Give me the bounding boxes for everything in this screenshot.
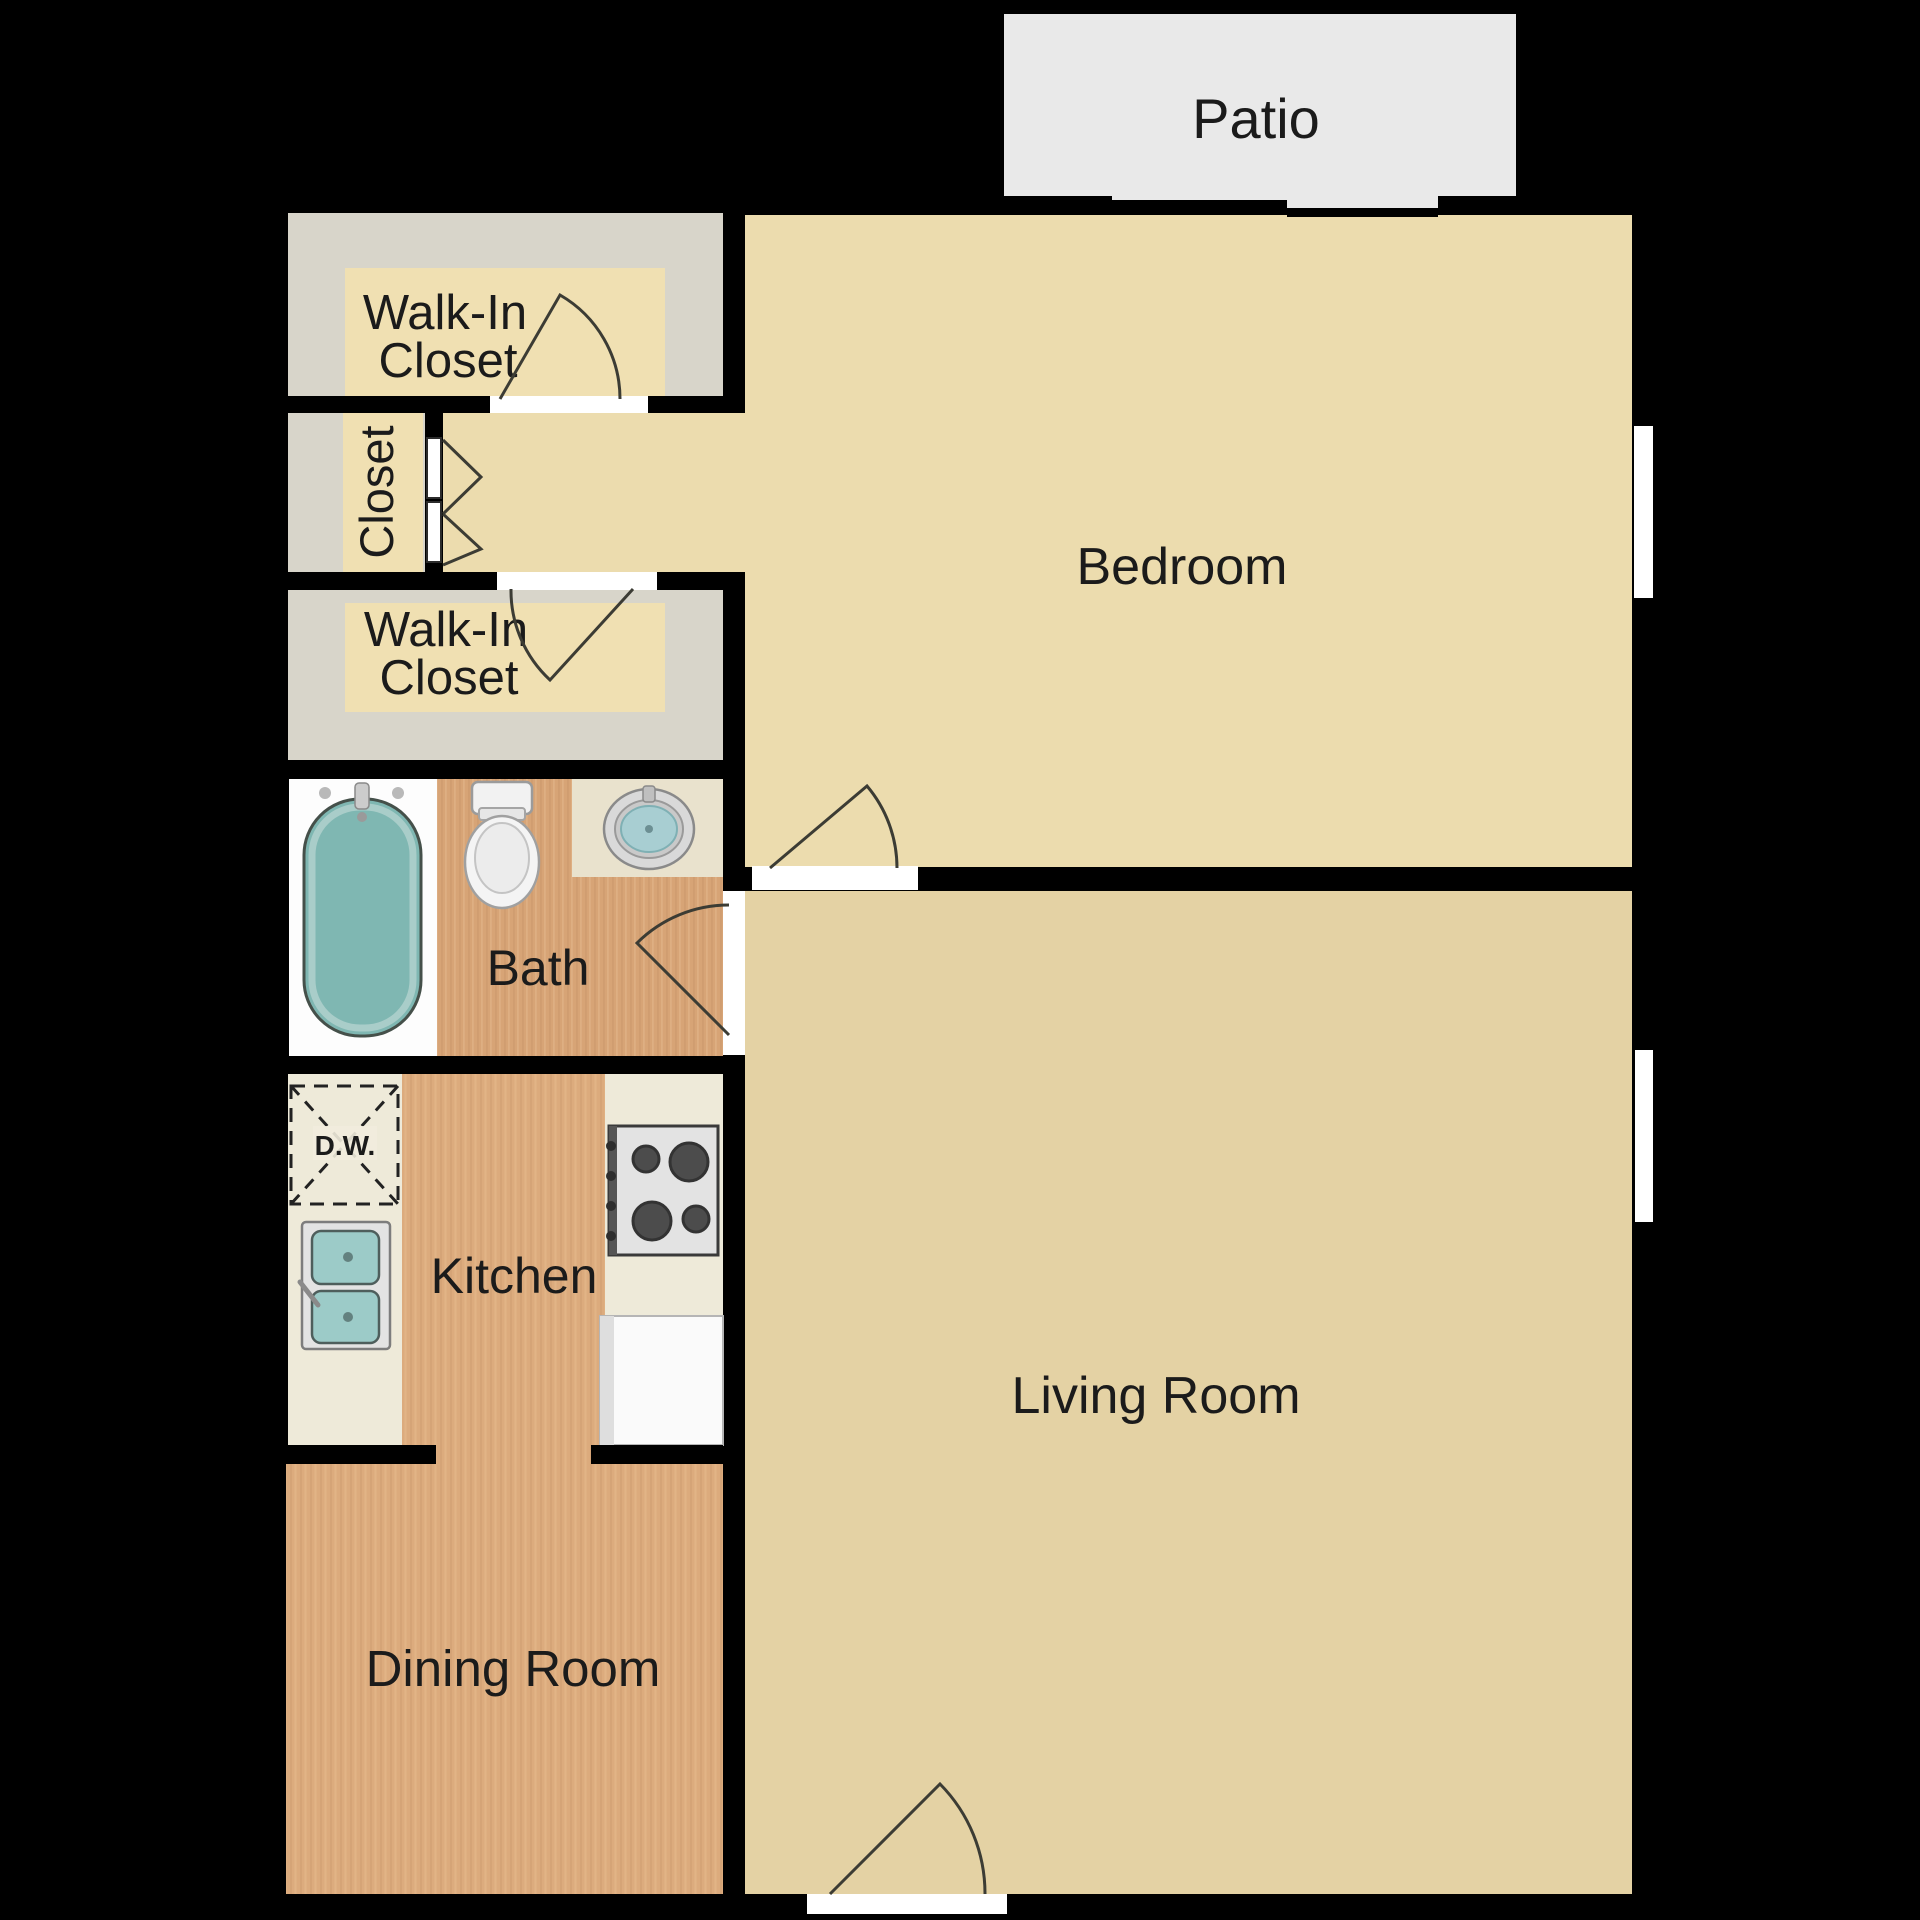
svg-text:Kitchen: Kitchen xyxy=(431,1248,598,1304)
svg-text:Bedroom: Bedroom xyxy=(1077,538,1288,596)
svg-text:Closet: Closet xyxy=(350,425,403,558)
svg-text:D.W.: D.W. xyxy=(315,1130,376,1161)
svg-text:Walk-In: Walk-In xyxy=(363,286,527,340)
svg-text:Closet: Closet xyxy=(379,334,518,388)
svg-text:Bath: Bath xyxy=(487,940,590,996)
svg-text:Patio: Patio xyxy=(1192,87,1320,150)
svg-text:Closet: Closet xyxy=(380,651,519,705)
svg-text:Living Room: Living Room xyxy=(1011,1367,1300,1425)
svg-text:Dining Room: Dining Room xyxy=(366,1640,661,1697)
svg-text:Walk-In: Walk-In xyxy=(364,603,528,657)
